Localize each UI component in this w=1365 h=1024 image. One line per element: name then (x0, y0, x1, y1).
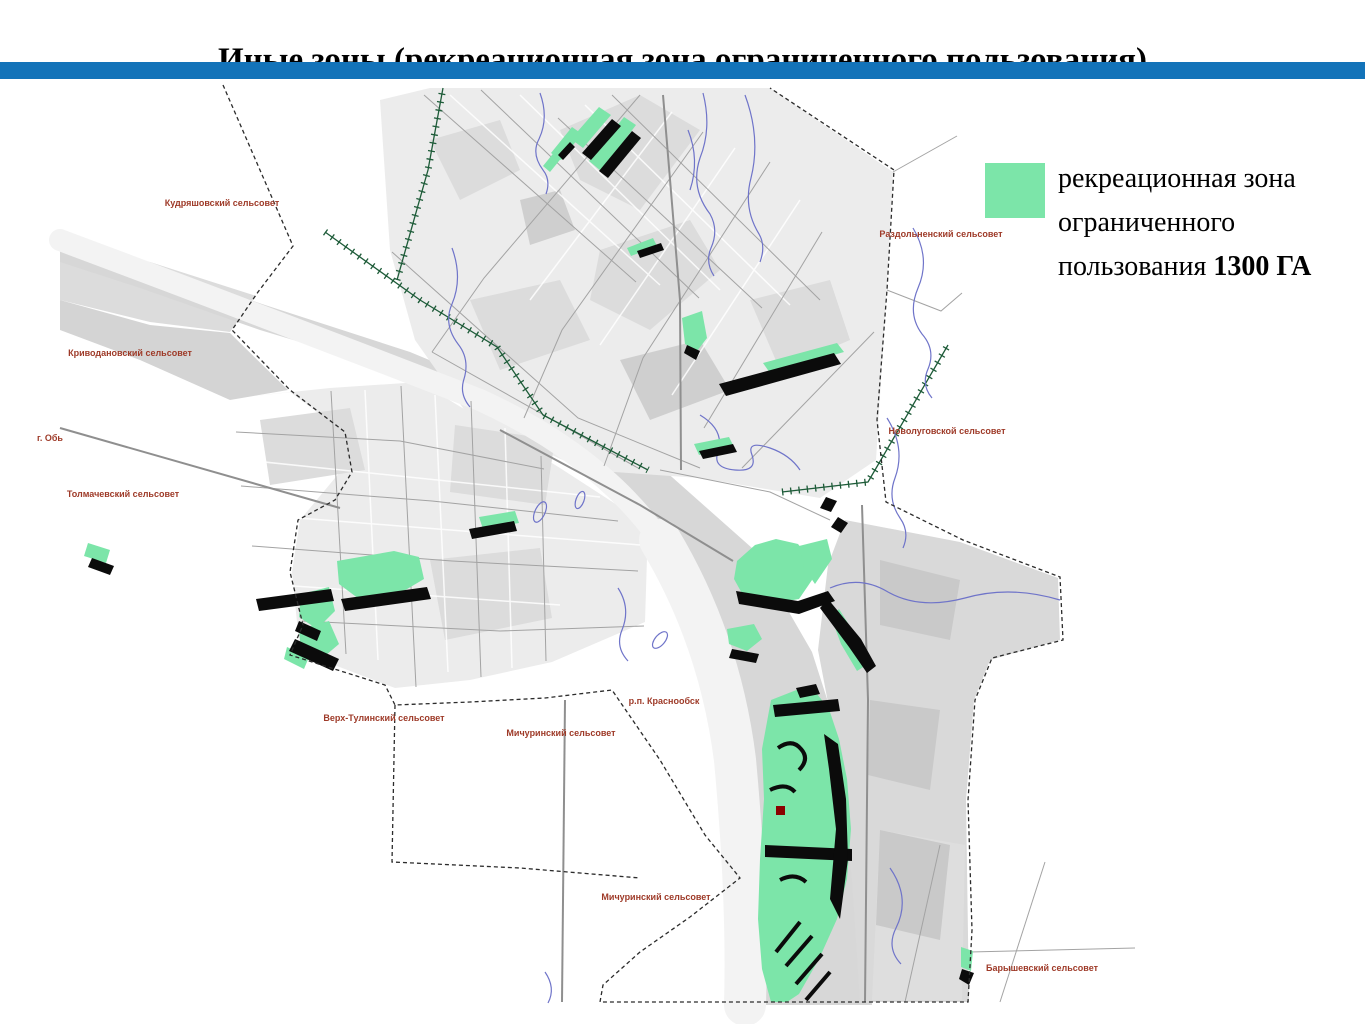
legend-color-swatch (985, 163, 1045, 218)
map-region-label: Криводановский сельсовет (68, 348, 192, 358)
map-region-label: г. Обь (37, 433, 63, 443)
map-region-label: Кудряшовский сельсовет (165, 198, 279, 208)
legend: рекреационная зона ограниченного пользов… (985, 163, 1365, 289)
legend-line-2: ограниченного (1058, 201, 1365, 245)
map-region-label: Мичуринский сельсовет (506, 728, 615, 738)
map-region-label: Барышевский сельсовет (986, 963, 1098, 973)
legend-line-3: пользования 1300 ГА (1058, 245, 1365, 289)
title-underline-bar (0, 62, 1365, 79)
map: Кудряшовский сельсоветКриводановский сел… (0, 0, 1365, 1024)
red-point-marker (776, 806, 785, 815)
legend-line-1: рекреационная зона (1058, 157, 1365, 201)
map-region-label: Новолуговской сельсовет (888, 426, 1005, 436)
map-region-label: Мичуринский сельсовет (601, 892, 710, 902)
map-region-label: р.п. Краснообск (629, 696, 700, 706)
city-map-svg (0, 0, 1365, 1024)
map-region-label: Толмачевский сельсовет (67, 489, 179, 499)
legend-area-value: 1300 ГА (1213, 251, 1311, 282)
legend-text: рекреационная зона ограниченного пользов… (1058, 157, 1365, 289)
map-region-label: Верх-Тулинский сельсовет (323, 713, 444, 723)
